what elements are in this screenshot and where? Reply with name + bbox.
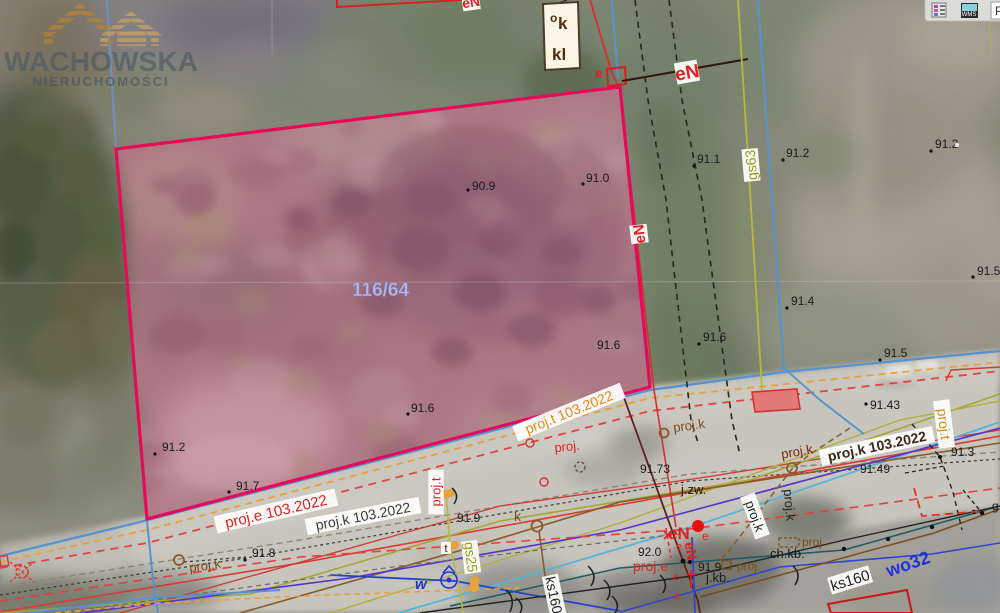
svg-text:j.zw.: j.zw. — [680, 482, 706, 497]
svg-text:91.6: 91.6 — [597, 338, 621, 352]
svg-text:91.6: 91.6 — [411, 401, 435, 415]
svg-text:e: e — [595, 65, 603, 81]
svg-text:92.0: 92.0 — [638, 545, 662, 559]
svg-text:e: e — [674, 590, 680, 602]
svg-text:91.1: 91.1 — [697, 152, 721, 166]
svg-text:k: k — [558, 14, 568, 33]
svg-text:91.43: 91.43 — [870, 398, 900, 412]
svg-text:91.5: 91.5 — [977, 264, 1000, 278]
svg-text:91.0: 91.0 — [586, 171, 610, 185]
svg-text:eN: eN — [682, 541, 701, 561]
svg-text:91.2: 91.2 — [162, 440, 186, 454]
svg-text:k: k — [514, 508, 522, 524]
svg-text:t: t — [444, 543, 447, 555]
svg-text:e: e — [702, 529, 709, 543]
svg-text:WACHOWSKA: WACHOWSKA — [4, 46, 198, 77]
svg-text:91.7: 91.7 — [236, 479, 260, 493]
svg-text:proj.: proj. — [802, 535, 825, 549]
svg-text:o: o — [550, 11, 557, 25]
svg-text:NIERUCHOMOŚCI: NIERUCHOMOŚCI — [33, 74, 168, 89]
svg-text:proj.k: proj.k — [781, 488, 799, 521]
svg-text:91.4: 91.4 — [791, 294, 815, 308]
svg-text:ch.kb.: ch.kb. — [770, 546, 805, 561]
svg-text:eN: eN — [630, 223, 649, 244]
svg-text:91.6: 91.6 — [703, 330, 727, 344]
svg-text:P: P — [995, 4, 1000, 18]
svg-text:proj.e: proj.e — [633, 558, 668, 574]
svg-text:kl: kl — [552, 45, 566, 64]
svg-text:91.2: 91.2 — [786, 146, 810, 160]
svg-text:91.9: 91.9 — [457, 511, 481, 525]
svg-text:e: e — [676, 541, 682, 553]
svg-text:91.5: 91.5 — [884, 346, 908, 360]
svg-text:j.kb.: j.kb. — [705, 570, 730, 585]
svg-text:e: e — [673, 571, 679, 583]
svg-text:90.9: 90.9 — [472, 179, 496, 193]
svg-text:WMS: WMS — [962, 12, 977, 18]
svg-text:91.8: 91.8 — [252, 546, 276, 560]
svg-text:91.49: 91.49 — [860, 462, 890, 476]
svg-text:proj.: proj. — [737, 559, 760, 573]
svg-text:91.73: 91.73 — [640, 462, 670, 476]
svg-text:116/64: 116/64 — [352, 280, 409, 301]
svg-text:gs63: gs63 — [742, 149, 761, 181]
svg-text:91.3: 91.3 — [951, 445, 975, 459]
svg-text:g: g — [992, 499, 999, 513]
svg-text:w: w — [415, 576, 428, 593]
svg-text:proj.: proj. — [554, 438, 581, 456]
svg-text:eN: eN — [673, 61, 701, 86]
svg-text:proj.t: proj.t — [429, 477, 444, 506]
